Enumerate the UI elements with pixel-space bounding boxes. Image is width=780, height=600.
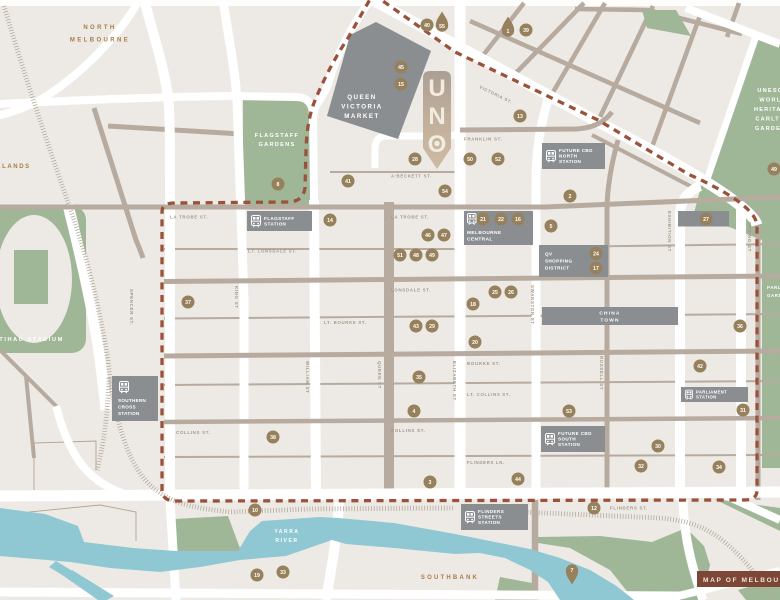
svg-text:PARL.: PARL. bbox=[767, 285, 780, 290]
svg-text:24: 24 bbox=[593, 251, 599, 257]
svg-text:49: 49 bbox=[429, 253, 435, 259]
svg-text:15: 15 bbox=[398, 82, 404, 88]
svg-text:27: 27 bbox=[703, 217, 709, 223]
svg-text:COLLINS ST.: COLLINS ST. bbox=[391, 428, 426, 433]
svg-text:LT. LONSDALE ST.: LT. LONSDALE ST. bbox=[248, 249, 297, 254]
svg-text:YARRA: YARRA bbox=[274, 529, 299, 535]
svg-text:MARKET: MARKET bbox=[344, 113, 379, 120]
svg-text:5: 5 bbox=[550, 224, 553, 230]
svg-text:SOUTHERN: SOUTHERN bbox=[118, 398, 147, 403]
svg-text:49: 49 bbox=[771, 167, 777, 173]
svg-text:38: 38 bbox=[270, 435, 276, 441]
svg-text:47: 47 bbox=[441, 233, 447, 239]
svg-text:STATION: STATION bbox=[696, 395, 717, 400]
svg-text:13: 13 bbox=[517, 114, 523, 120]
svg-text:3: 3 bbox=[429, 480, 432, 486]
svg-text:43: 43 bbox=[413, 324, 419, 330]
svg-text:12: 12 bbox=[591, 506, 597, 512]
svg-text:CENTRAL: CENTRAL bbox=[467, 237, 493, 243]
svg-text:37: 37 bbox=[185, 300, 191, 306]
svg-text:16: 16 bbox=[515, 217, 521, 223]
svg-text:SPRING ST: SPRING ST bbox=[747, 222, 752, 252]
svg-text:7: 7 bbox=[571, 568, 574, 574]
svg-text:FRANKLIN ST.: FRANKLIN ST. bbox=[464, 137, 502, 142]
svg-text:14: 14 bbox=[327, 218, 333, 224]
svg-text:MELBOURNE: MELBOURNE bbox=[467, 230, 502, 236]
svg-text:HERITAGE: HERITAGE bbox=[754, 107, 780, 113]
svg-text:21: 21 bbox=[480, 217, 486, 223]
svg-text:30: 30 bbox=[655, 444, 661, 450]
svg-text:45: 45 bbox=[398, 65, 404, 71]
svg-text:39: 39 bbox=[523, 28, 529, 34]
svg-text:DOCKLANDS: DOCKLANDS bbox=[0, 164, 31, 170]
svg-text:U: U bbox=[428, 75, 445, 102]
svg-text:54: 54 bbox=[442, 189, 448, 195]
svg-text:SPENCER ST.: SPENCER ST. bbox=[129, 289, 134, 326]
svg-text:26: 26 bbox=[508, 290, 514, 296]
svg-text:FLINDERS ST.: FLINDERS ST. bbox=[610, 506, 648, 511]
svg-text:GARD.: GARD. bbox=[767, 293, 780, 298]
svg-text:COLLINS ST.: COLLINS ST. bbox=[176, 430, 211, 435]
svg-text:FLINDERS: FLINDERS bbox=[478, 509, 504, 514]
svg-text:MAP OF MELBOURNE: MAP OF MELBOURNE bbox=[703, 577, 780, 584]
svg-text:STATION: STATION bbox=[559, 159, 582, 164]
svg-text:36: 36 bbox=[737, 324, 743, 330]
svg-text:SOUTH: SOUTH bbox=[558, 437, 576, 442]
svg-text:48: 48 bbox=[413, 253, 419, 259]
svg-text:BOURKE ST.: BOURKE ST. bbox=[467, 361, 501, 366]
svg-text:SWANSTON ST: SWANSTON ST bbox=[530, 285, 535, 325]
svg-text:QV: QV bbox=[545, 252, 553, 257]
svg-text:FLAGSTAFF: FLAGSTAFF bbox=[255, 133, 300, 139]
svg-text:NORTH: NORTH bbox=[559, 154, 578, 159]
svg-text:LT. BOURKE ST.: LT. BOURKE ST. bbox=[324, 320, 367, 325]
svg-text:FLINDERS LN.: FLINDERS LN. bbox=[467, 460, 505, 465]
svg-text:EXHIBITION ST: EXHIBITION ST bbox=[667, 211, 672, 252]
svg-text:RUSSELL ST: RUSSELL ST bbox=[599, 356, 604, 390]
svg-text:33: 33 bbox=[280, 570, 286, 576]
svg-text:KING ST: KING ST bbox=[234, 286, 239, 309]
svg-text:ETIHAD STADIUM: ETIHAD STADIUM bbox=[0, 337, 64, 343]
svg-text:UNESCO: UNESCO bbox=[757, 88, 780, 94]
svg-text:LT. COLLINS ST.: LT. COLLINS ST. bbox=[467, 392, 511, 397]
svg-text:CROSS: CROSS bbox=[118, 405, 136, 410]
svg-text:55: 55 bbox=[439, 24, 445, 30]
svg-text:WILLIAM ST: WILLIAM ST bbox=[305, 361, 310, 394]
svg-text:17: 17 bbox=[593, 266, 599, 272]
svg-text:44: 44 bbox=[515, 477, 521, 483]
svg-text:STATION: STATION bbox=[558, 442, 581, 447]
svg-text:GARDENS: GARDENS bbox=[258, 142, 295, 148]
svg-text:50: 50 bbox=[467, 157, 473, 163]
svg-text:SHOPPING: SHOPPING bbox=[545, 259, 572, 264]
svg-text:STATION: STATION bbox=[478, 520, 501, 525]
svg-text:19: 19 bbox=[254, 573, 260, 579]
svg-text:STATION: STATION bbox=[118, 411, 140, 416]
svg-text:29: 29 bbox=[429, 324, 435, 330]
svg-text:FLAGSTAFF: FLAGSTAFF bbox=[264, 216, 295, 221]
svg-text:STREETS: STREETS bbox=[478, 515, 502, 520]
svg-text:18: 18 bbox=[470, 302, 476, 308]
svg-text:52: 52 bbox=[495, 157, 501, 163]
svg-text:STATION: STATION bbox=[264, 221, 287, 226]
svg-text:42: 42 bbox=[697, 364, 703, 370]
svg-text:10: 10 bbox=[252, 508, 258, 514]
svg-text:28: 28 bbox=[412, 157, 418, 163]
svg-text:51: 51 bbox=[397, 253, 403, 259]
svg-text:46: 46 bbox=[425, 233, 431, 239]
svg-text:1: 1 bbox=[507, 29, 510, 35]
svg-text:LONSDALE ST.: LONSDALE ST. bbox=[391, 288, 431, 293]
svg-text:2: 2 bbox=[569, 194, 572, 200]
svg-text:DISTRICT: DISTRICT bbox=[545, 266, 569, 271]
svg-text:FUTURE CBD: FUTURE CBD bbox=[558, 431, 592, 436]
svg-text:53: 53 bbox=[566, 409, 572, 415]
svg-text:31: 31 bbox=[740, 408, 746, 414]
svg-text:LA TROBE ST.: LA TROBE ST. bbox=[170, 215, 208, 220]
svg-text:34: 34 bbox=[716, 465, 722, 471]
svg-text:40: 40 bbox=[424, 23, 430, 29]
svg-text:22: 22 bbox=[498, 217, 504, 223]
svg-text:TOWN: TOWN bbox=[600, 318, 619, 324]
svg-text:NORTH: NORTH bbox=[83, 25, 116, 31]
svg-text:N: N bbox=[428, 103, 445, 130]
svg-text:VICTORIA: VICTORIA bbox=[341, 104, 382, 111]
svg-text:RIVER: RIVER bbox=[275, 538, 298, 544]
svg-text:20: 20 bbox=[472, 340, 478, 346]
svg-text:LA TROBE ST.: LA TROBE ST. bbox=[391, 215, 429, 220]
svg-text:8: 8 bbox=[277, 182, 280, 188]
svg-text:41: 41 bbox=[345, 179, 351, 185]
svg-text:25: 25 bbox=[492, 290, 498, 296]
svg-text:CARLTON: CARLTON bbox=[755, 117, 780, 123]
svg-text:32: 32 bbox=[638, 464, 644, 470]
svg-text:4: 4 bbox=[413, 409, 416, 415]
svg-text:ELIZABETH ST: ELIZABETH ST bbox=[452, 361, 457, 401]
svg-text:FUTURE CBD: FUTURE CBD bbox=[559, 148, 593, 153]
svg-text:QUEEN ST: QUEEN ST bbox=[377, 361, 382, 389]
svg-text:GARDENS: GARDENS bbox=[755, 126, 780, 132]
svg-text:35: 35 bbox=[416, 375, 422, 381]
svg-text:CHINA: CHINA bbox=[599, 311, 620, 317]
svg-text:WORLD: WORLD bbox=[759, 98, 780, 104]
svg-text:A'BECKETT ST.: A'BECKETT ST. bbox=[391, 174, 432, 179]
svg-text:MELBOURNE: MELBOURNE bbox=[70, 38, 130, 44]
svg-text:QUEEN: QUEEN bbox=[347, 94, 377, 101]
svg-text:SOUTHBANK: SOUTHBANK bbox=[421, 575, 479, 581]
